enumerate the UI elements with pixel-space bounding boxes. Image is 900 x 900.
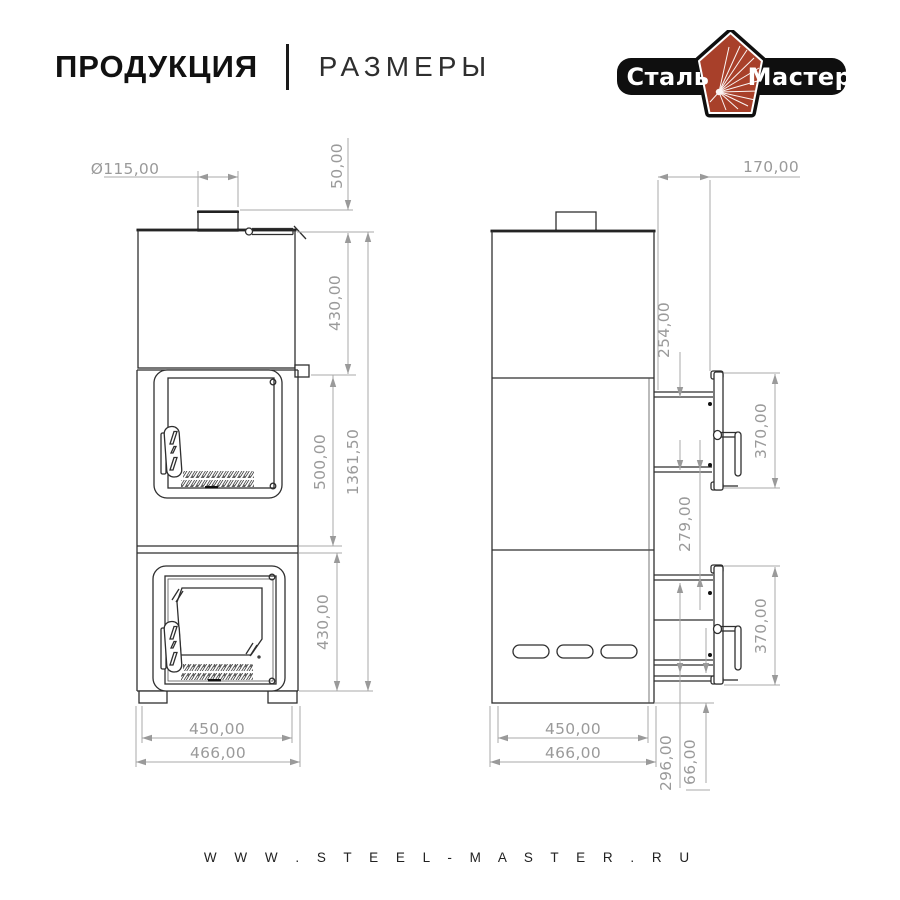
- dimension-drawing: Ø115,00 50,00 430,00 500,00 1361,50 430,…: [0, 0, 900, 900]
- front-top-section: [138, 230, 295, 368]
- chimney-stub: [556, 212, 596, 231]
- dim-depth-inner: 450,00: [545, 720, 601, 738]
- door-handle: [161, 621, 182, 672]
- lower-door-front: [153, 566, 285, 691]
- dim-middle-section: 500,00: [311, 434, 329, 490]
- dim-width-outer: 466,00: [190, 744, 246, 762]
- vent-grille: [183, 664, 253, 671]
- dim-lower-door-height: 370,00: [752, 598, 770, 654]
- dim-doors-gap: 279,00: [676, 496, 694, 552]
- side-view: [491, 212, 742, 703]
- dim-pipe-height: 50,00: [328, 143, 346, 189]
- dim-top-section: 430,00: [326, 275, 344, 331]
- door-latch: [208, 679, 221, 682]
- side-vent-slots: [513, 645, 637, 658]
- dim-bottom-section: 430,00: [314, 594, 332, 650]
- dim-width-inner: 450,00: [189, 720, 245, 738]
- door-handle: [161, 426, 182, 477]
- upper-door-shelves: [654, 392, 713, 472]
- door-screws: [708, 402, 712, 657]
- side-body: [492, 231, 654, 703]
- vent-grille: [183, 471, 254, 478]
- dim-bottom-span: 296,00: [657, 735, 675, 791]
- upper-door-front: [154, 370, 282, 498]
- dim-door-top-offset: 254,00: [655, 302, 673, 358]
- website-url: W W W . S T E E L - M A S T E R . R U: [0, 850, 900, 865]
- dim-depth-outer: 466,00: [545, 744, 601, 762]
- right-foot: [268, 691, 297, 703]
- front-view: [137, 211, 310, 703]
- chimney-pipe: [198, 211, 238, 231]
- lower-door-side: [711, 565, 741, 684]
- damper-rod: [246, 226, 307, 239]
- dim-floor-clearance: 66,00: [681, 739, 699, 785]
- left-foot: [139, 691, 167, 703]
- dim-handle-offset: 170,00: [743, 158, 799, 176]
- door-latch: [205, 486, 218, 489]
- damper-tab: [295, 365, 309, 377]
- side-dimensions: 170,00 254,00 370,00 279,00 370,00 296,0…: [490, 158, 800, 791]
- dim-diameter: Ø115,00: [91, 160, 160, 178]
- upper-door-side: [711, 371, 741, 490]
- dim-upper-door-height: 370,00: [752, 403, 770, 459]
- dim-total-height: 1361,50: [344, 429, 362, 495]
